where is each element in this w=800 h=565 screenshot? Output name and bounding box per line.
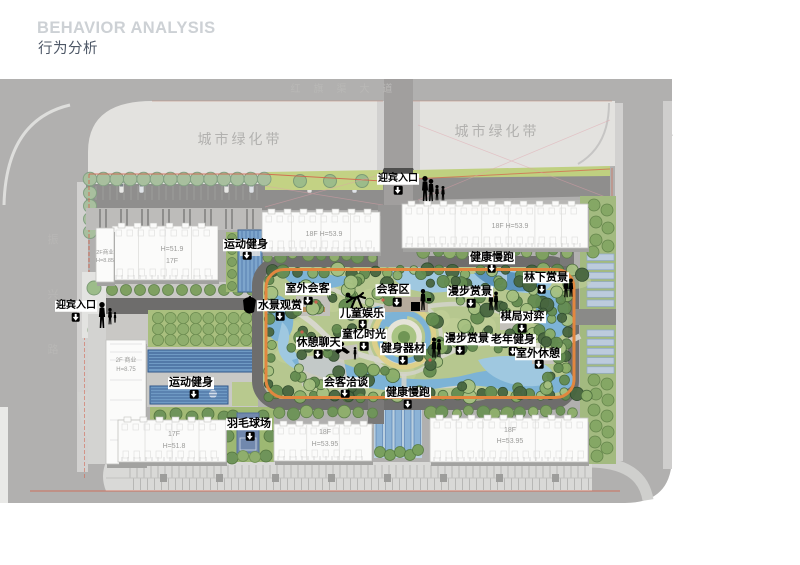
svg-text:2F商业: 2F商业 xyxy=(96,248,114,256)
svg-text:城市绿化带: 城市绿化带 xyxy=(455,123,540,139)
svg-text:18F: 18F xyxy=(319,429,331,436)
svg-text:H=51.9: H=51.9 xyxy=(161,246,184,253)
svg-text:18F: 18F xyxy=(504,427,516,434)
svg-text:振: 振 xyxy=(48,232,59,246)
svg-text:H=8.85: H=8.85 xyxy=(96,258,114,264)
svg-text:H=53.95: H=53.95 xyxy=(312,441,339,448)
svg-text:17F: 17F xyxy=(168,431,180,438)
svg-text:H=8.75: H=8.75 xyxy=(116,367,136,373)
svg-text:红旗渠大道: 红旗渠大道 xyxy=(291,82,406,95)
svg-text:城市绿化带: 城市绿化带 xyxy=(198,131,283,147)
svg-text:18F H=53.9: 18F H=53.9 xyxy=(492,223,529,230)
svg-text:18F H=53.9: 18F H=53.9 xyxy=(306,231,343,238)
svg-text:H=51.8: H=51.8 xyxy=(163,443,186,450)
svg-text:2F 商业: 2F 商业 xyxy=(116,356,137,364)
svg-text:路: 路 xyxy=(48,343,59,356)
svg-text:17F: 17F xyxy=(166,258,178,265)
svg-text:H=53.95: H=53.95 xyxy=(497,438,524,445)
